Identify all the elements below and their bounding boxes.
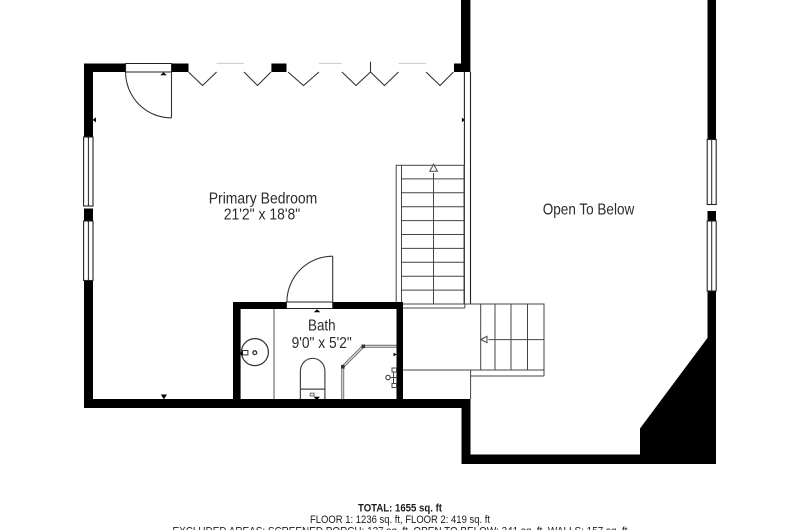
svg-text:TOTAL: 1655 sq. ft: TOTAL: 1655 sq. ft [358,502,442,514]
svg-text:FLOOR 1: 1236 sq. ft, FLOOR 2:: FLOOR 1: 1236 sq. ft, FLOOR 2: 419 sq. f… [310,514,490,526]
svg-text:Bath: Bath [308,318,336,335]
svg-text:EXCLUDED AREAS: SCREENED PORCH: EXCLUDED AREAS: SCREENED PORCH: 127 sq. … [173,526,628,530]
svg-text:Primary Bedroom: Primary Bedroom [209,190,318,207]
svg-text:9'0" x 5'2": 9'0" x 5'2" [292,335,352,352]
svg-text:21'2" x 18'8": 21'2" x 18'8" [224,207,301,224]
svg-text:Open To Below: Open To Below [543,202,635,219]
